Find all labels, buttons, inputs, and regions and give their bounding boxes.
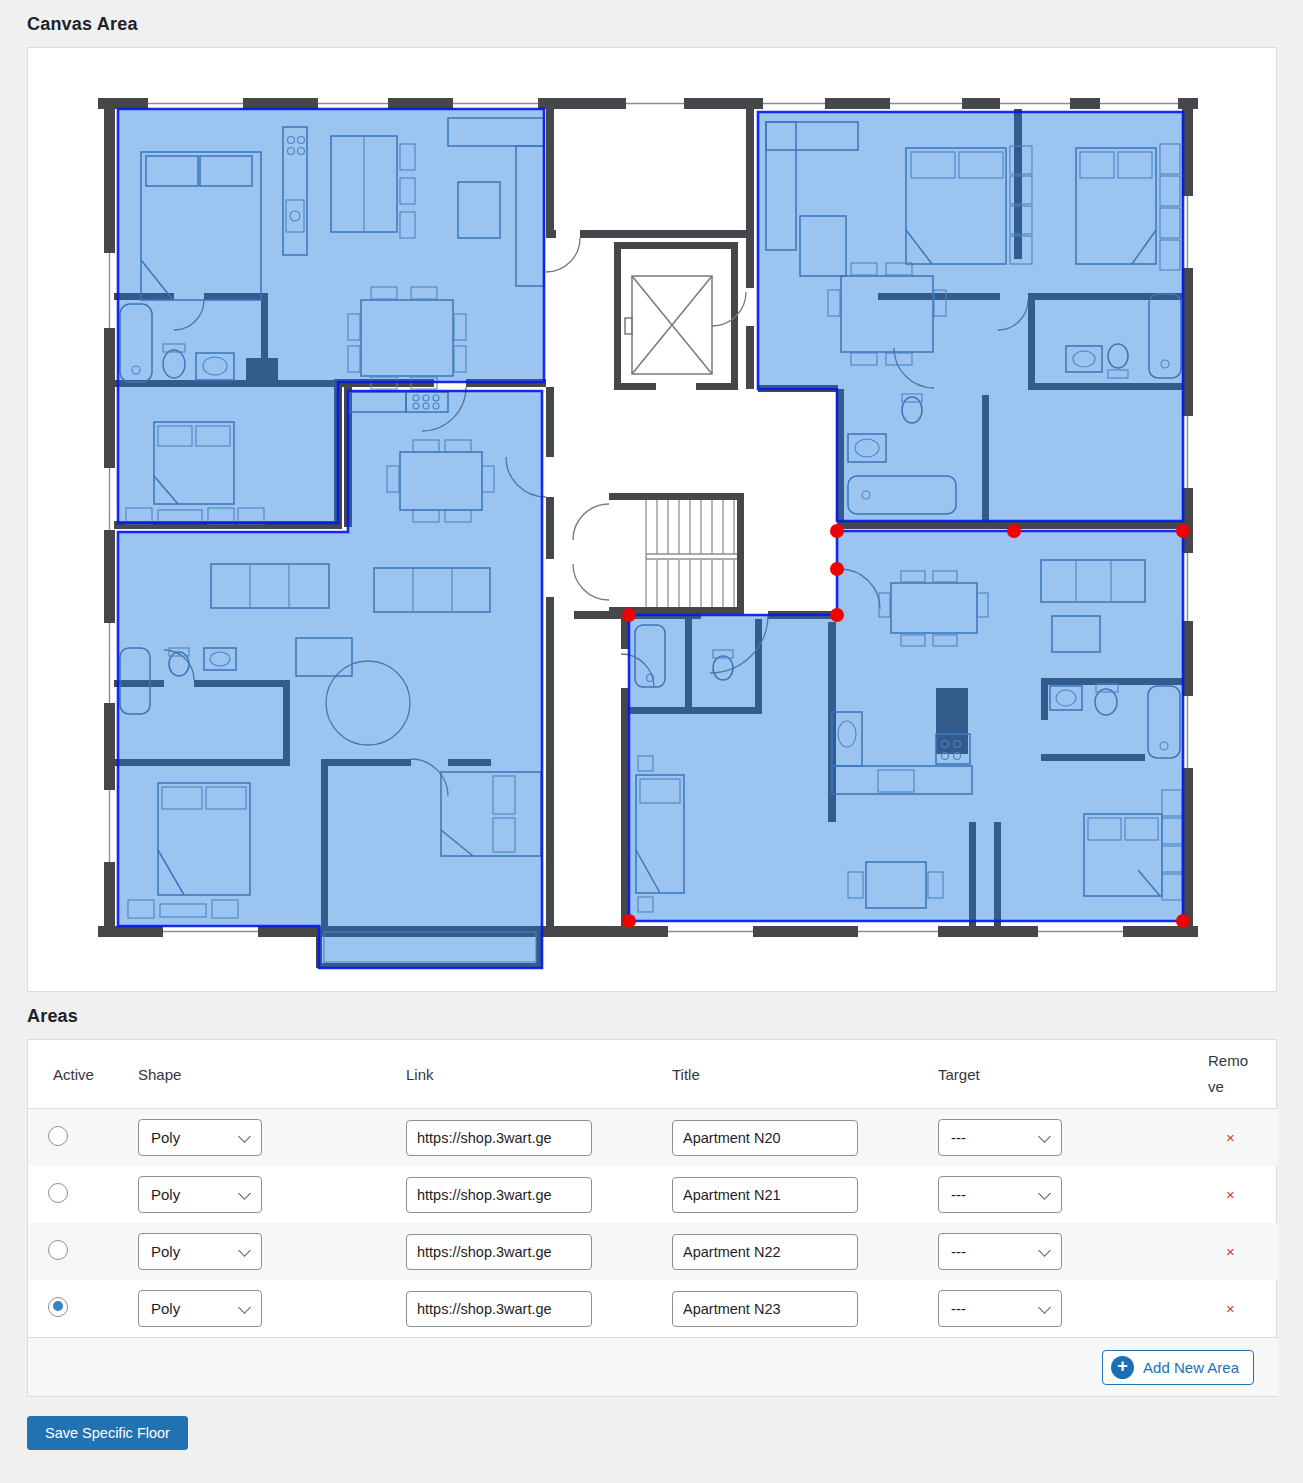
table-row: Poly --- ×: [28, 1223, 1278, 1280]
header-target: Target: [928, 1040, 1198, 1109]
vertex-handle[interactable]: [1176, 524, 1190, 538]
link-input[interactable]: [406, 1120, 592, 1156]
header-remove: Remove: [1198, 1040, 1278, 1109]
shape-select[interactable]: Poly: [138, 1233, 262, 1270]
area-polygon-apartment-n22[interactable]: [758, 112, 1183, 521]
shape-select[interactable]: Poly: [138, 1176, 262, 1213]
active-radio[interactable]: [48, 1126, 68, 1146]
table-header-row: Active Shape Link Title Target Remove: [28, 1040, 1278, 1109]
header-link: Link: [396, 1040, 662, 1109]
table-row: Poly --- ×: [28, 1166, 1278, 1223]
vertex-handle[interactable]: [830, 524, 844, 538]
target-select[interactable]: ---: [938, 1290, 1062, 1327]
remove-button[interactable]: ×: [1226, 1186, 1235, 1203]
areas-table-container: Active Shape Link Title Target Remove Po…: [27, 1039, 1277, 1397]
active-radio[interactable]: [48, 1240, 68, 1260]
vertex-handle[interactable]: [1007, 524, 1021, 538]
remove-button[interactable]: ×: [1226, 1129, 1235, 1146]
active-radio[interactable]: [48, 1297, 68, 1317]
save-specific-floor-button[interactable]: Save Specific Floor: [27, 1416, 188, 1450]
plus-icon: [1111, 1356, 1134, 1379]
header-shape: Shape: [128, 1040, 396, 1109]
active-radio[interactable]: [48, 1183, 68, 1203]
header-title: Title: [662, 1040, 928, 1109]
vertex-handle[interactable]: [622, 914, 636, 928]
link-input[interactable]: [406, 1177, 592, 1213]
target-select[interactable]: ---: [938, 1119, 1062, 1156]
stairs: [646, 500, 737, 607]
link-input[interactable]: [406, 1291, 592, 1327]
header-active: Active: [28, 1040, 128, 1109]
add-new-area-button[interactable]: Add New Area: [1102, 1350, 1254, 1385]
title-input[interactable]: [672, 1291, 858, 1327]
vertex-handle[interactable]: [1176, 914, 1190, 928]
canvas-area-title: Canvas Area: [27, 14, 1277, 35]
add-new-area-label: Add New Area: [1143, 1359, 1239, 1376]
table-footer-row: Add New Area: [28, 1338, 1278, 1397]
table-row: Poly --- ×: [28, 1109, 1278, 1167]
vertex-handle[interactable]: [830, 608, 844, 622]
table-row: Poly --- ×: [28, 1280, 1278, 1338]
title-input[interactable]: [672, 1234, 858, 1270]
areas-title: Areas: [27, 1006, 1277, 1027]
floor-plan: [28, 48, 1276, 991]
vertex-handle[interactable]: [830, 562, 844, 576]
vertex-handle[interactable]: [622, 608, 636, 622]
title-input[interactable]: [672, 1120, 858, 1156]
floorplan-canvas[interactable]: [27, 47, 1277, 992]
title-input[interactable]: [672, 1177, 858, 1213]
shape-select[interactable]: Poly: [138, 1290, 262, 1327]
shape-select[interactable]: Poly: [138, 1119, 262, 1156]
link-input[interactable]: [406, 1234, 592, 1270]
areas-table: Active Shape Link Title Target Remove Po…: [28, 1040, 1278, 1396]
target-select[interactable]: ---: [938, 1176, 1062, 1213]
target-select[interactable]: ---: [938, 1233, 1062, 1270]
remove-button[interactable]: ×: [1226, 1243, 1235, 1260]
remove-button[interactable]: ×: [1226, 1300, 1235, 1317]
elevator: [625, 276, 712, 374]
